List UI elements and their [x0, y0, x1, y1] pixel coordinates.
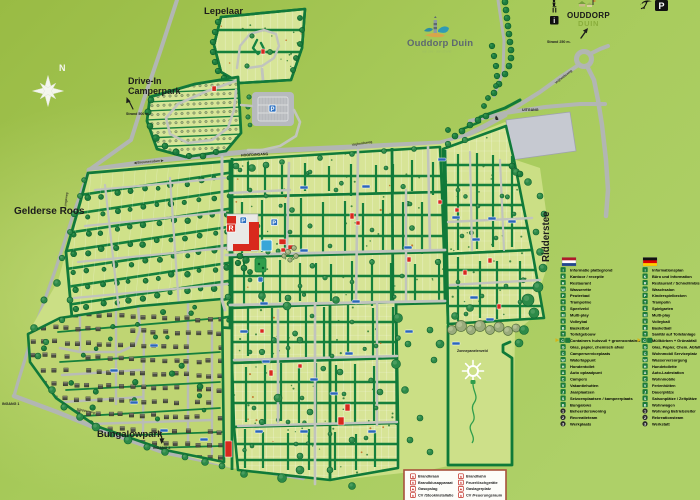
svg-text:aan zee · aan strand: aan zee · aan strand — [422, 50, 451, 54]
svg-text:Containers huisvuil + groencon: Containers huisvuil + groencontainer — [570, 338, 641, 343]
svg-text:P: P — [272, 220, 276, 226]
svg-text:Kantoor / receptie: Kantoor / receptie — [570, 274, 605, 279]
svg-text:Restaurant: Restaurant — [570, 280, 592, 285]
svg-text:i: i — [553, 18, 555, 25]
svg-text:K: K — [644, 275, 647, 279]
svg-text:2: 2 — [644, 416, 646, 420]
svg-text:W: W — [561, 358, 565, 362]
svg-text:Bungalowpark: Bungalowpark — [97, 429, 163, 440]
svg-text:W: W — [643, 358, 647, 362]
svg-text:M: M — [644, 313, 647, 317]
svg-text:Volleybal: Volleybal — [570, 319, 587, 324]
svg-text:Brandblusapparaat: Brandblusapparaat — [418, 481, 453, 485]
svg-text:Gaslagerplatz: Gaslagerplatz — [466, 487, 491, 491]
svg-text:3: 3 — [562, 422, 564, 426]
svg-text:INGANG 1: INGANG 1 — [2, 402, 19, 406]
svg-text:DUIN: DUIN — [578, 19, 599, 28]
svg-text:A: A — [562, 371, 565, 375]
svg-text:▲: ▲ — [459, 493, 462, 497]
svg-text:♞: ♞ — [494, 115, 499, 122]
svg-text:▲: ▲ — [459, 474, 462, 478]
svg-text:2: 2 — [562, 416, 564, 420]
svg-text:Basketball: Basketball — [652, 325, 671, 330]
svg-text:Camperpark: Camperpark — [128, 86, 182, 96]
svg-text:M: M — [562, 313, 565, 317]
svg-text:Müllkörben + Grünabfall: Müllkörben + Grünabfall — [652, 338, 697, 343]
svg-text:Wohnung Betriebsleiter: Wohnung Betriebsleiter — [652, 409, 696, 414]
svg-text:Multi-play: Multi-play — [570, 312, 589, 317]
svg-text:Toiletgebouw: Toiletgebouw — [570, 332, 596, 337]
svg-text:Campers: Campers — [570, 377, 588, 382]
svg-text:J: J — [644, 390, 646, 394]
svg-text:INGANG 2: INGANG 2 — [153, 446, 170, 450]
svg-text:W: W — [643, 288, 647, 292]
svg-text:▲: ▲ — [411, 474, 414, 478]
svg-text:▲: ▲ — [459, 487, 462, 491]
svg-text:CV /Feuerungsraum: CV /Feuerungsraum — [466, 493, 503, 497]
svg-text:A: A — [644, 371, 647, 375]
svg-text:Werkplaats: Werkplaats — [570, 422, 592, 427]
svg-text:▲: ▲ — [411, 493, 414, 497]
svg-text:P: P — [658, 1, 664, 11]
svg-text:i: i — [645, 269, 646, 273]
svg-text:Gasopslag: Gasopslag — [418, 487, 438, 491]
svg-text:Trampoline: Trampoline — [570, 300, 592, 305]
svg-text:Informatie plattegrond: Informatie plattegrond — [570, 268, 613, 273]
svg-text:R: R — [562, 281, 565, 285]
svg-text:B: B — [644, 403, 647, 407]
svg-text:R: R — [228, 226, 233, 233]
svg-text:Brandhahn: Brandhahn — [466, 475, 487, 479]
svg-text:3: 3 — [644, 422, 646, 426]
svg-text:Informationsplan: Informationsplan — [652, 268, 684, 273]
svg-text:Watertappunt: Watertappunt — [570, 357, 596, 362]
svg-text:Beheerderswoning: Beheerderswoning — [570, 409, 607, 414]
svg-text:Werkstatt: Werkstatt — [652, 422, 670, 427]
svg-text:C: C — [561, 339, 564, 343]
svg-text:Glas, papier, chemisch afval: Glas, papier, chemisch afval — [570, 345, 624, 350]
svg-text:Büro und Information: Büro und Information — [652, 274, 692, 279]
svg-text:B: B — [562, 326, 565, 330]
svg-text:Brandkraan: Brandkraan — [418, 475, 440, 479]
svg-text:Rekreationsteam: Rekreationsteam — [652, 415, 684, 420]
svg-text:Ridderstee: Ridderstee — [541, 211, 552, 262]
svg-text:H: H — [644, 365, 647, 369]
svg-text:Dauerplätze: Dauerplätze — [652, 389, 675, 394]
svg-text:Jaarplaatsen: Jaarplaatsen — [570, 389, 595, 394]
svg-text:Restaurant / Schnellimbiss: Restaurant / Schnellimbiss — [652, 280, 700, 285]
svg-text:Wasserette: Wasserette — [570, 287, 592, 292]
svg-text:Volleyball: Volleyball — [652, 319, 670, 324]
svg-text:G: G — [562, 346, 565, 350]
svg-text:i: i — [563, 269, 564, 273]
svg-text:Feuerlöschgeräte: Feuerlöschgeräte — [466, 481, 498, 485]
svg-text:Camperserviceplaats: Camperserviceplaats — [570, 351, 611, 356]
svg-text:Lepelaar: Lepelaar — [204, 6, 243, 17]
svg-text:Wohnwagen: Wohnwagen — [652, 402, 675, 407]
svg-text:Hondentoilet: Hondentoilet — [570, 364, 595, 369]
svg-text:Wohnmobil Serviceplatz: Wohnmobil Serviceplatz — [652, 351, 697, 356]
svg-text:1: 1 — [644, 409, 646, 413]
svg-text:▲: ▲ — [411, 487, 414, 491]
svg-text:W: W — [561, 288, 565, 292]
svg-text:Seizoenplaatsen / kampeerplaat: Seizoenplaatsen / kampeerplaats — [570, 396, 633, 401]
svg-text:Vakantiehutten: Vakantiehutten — [570, 383, 599, 388]
svg-text:Basketbal: Basketbal — [570, 325, 589, 330]
svg-text:Waschsalon: Waschsalon — [652, 287, 675, 292]
svg-text:Drive-In: Drive-In — [128, 76, 162, 86]
svg-text:Spielgarten: Spielgarten — [652, 306, 674, 311]
svg-text:B: B — [562, 403, 565, 407]
svg-text:Wasserversorgung: Wasserversorgung — [652, 357, 688, 362]
svg-text:N: N — [59, 63, 66, 73]
svg-text:K: K — [562, 275, 565, 279]
svg-text:Ferienhütten: Ferienhütten — [652, 383, 676, 388]
svg-text:B: B — [644, 326, 647, 330]
svg-text:UITGANG: UITGANG — [522, 108, 539, 112]
svg-text:R: R — [644, 281, 647, 285]
svg-text:▲: ▲ — [459, 481, 462, 485]
svg-text:P: P — [270, 107, 274, 113]
svg-text:Ouddorp Duin: Ouddorp Duin — [407, 38, 473, 49]
svg-text:Saisonplätze / Zeltplätze: Saisonplätze / Zeltplätze — [652, 396, 698, 401]
svg-text:C: C — [562, 378, 565, 382]
svg-text:Sanitär auf Toiletanlage: Sanitär auf Toiletanlage — [652, 332, 696, 337]
svg-text:C: C — [644, 378, 647, 382]
svg-text:H: H — [562, 365, 565, 369]
svg-text:J: J — [562, 390, 564, 394]
svg-text:Multi-play: Multi-play — [652, 312, 671, 317]
svg-text:1: 1 — [562, 409, 564, 413]
svg-text:Kinderspielbecken: Kinderspielbecken — [652, 293, 687, 298]
svg-text:Glas, Papier, Chem. Abfall: Glas, Papier, Chem. Abfall — [652, 345, 700, 350]
svg-text:▲: ▲ — [411, 481, 414, 485]
svg-text:Trampolin: Trampolin — [652, 300, 671, 305]
svg-text:Bungalows: Bungalows — [570, 402, 592, 407]
svg-text:Auto-Ladestation: Auto-Ladestation — [652, 370, 685, 375]
svg-text:CV /Stookinstallatie: CV /Stookinstallatie — [418, 493, 453, 497]
svg-text:P: P — [241, 218, 245, 224]
svg-text:Gelderse Roos: Gelderse Roos — [14, 206, 85, 217]
svg-text:Wohnmobile: Wohnmobile — [652, 377, 676, 382]
svg-text:Hundetoilette: Hundetoilette — [652, 364, 678, 369]
svg-text:G: G — [644, 346, 647, 350]
svg-text:C: C — [643, 339, 646, 343]
svg-text:Zonnepanelenveld: Zonnepanelenveld — [457, 349, 488, 353]
svg-text:Auto oplaadpunt: Auto oplaadpunt — [570, 370, 602, 375]
svg-text:C: C — [562, 352, 565, 356]
svg-text:Recreatieteam: Recreatieteam — [570, 415, 598, 420]
svg-text:Speelveld: Speelveld — [570, 306, 589, 311]
svg-text:Strand 250 m.: Strand 250 m. — [547, 40, 571, 44]
svg-text:Strand 500 m.: Strand 500 m. — [126, 112, 150, 116]
svg-text:Peuterbad: Peuterbad — [570, 293, 590, 298]
svg-text:C: C — [644, 352, 647, 356]
